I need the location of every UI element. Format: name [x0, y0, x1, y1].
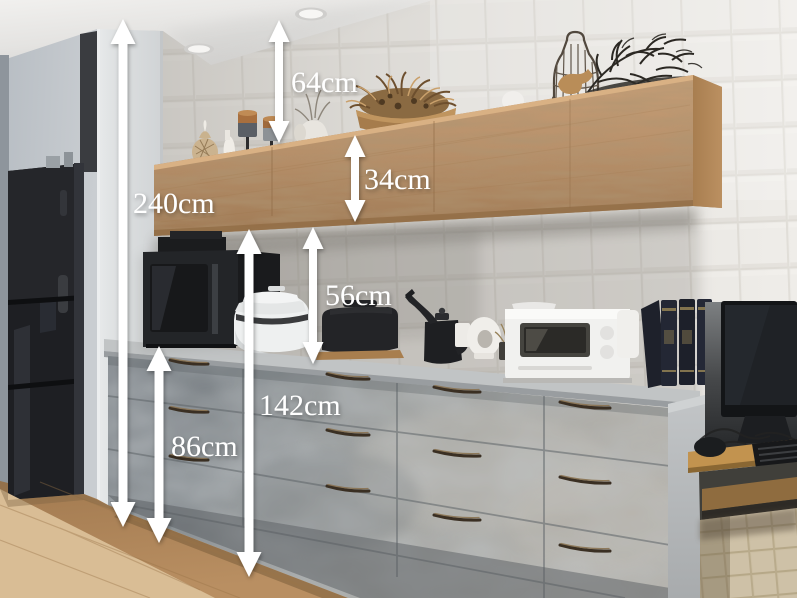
svg-text:240cm: 240cm	[133, 187, 215, 220]
svg-text:86cm: 86cm	[171, 430, 238, 463]
svg-text:34cm: 34cm	[364, 163, 431, 196]
svg-text:56cm: 56cm	[325, 279, 392, 312]
svg-text:142cm: 142cm	[259, 389, 341, 422]
svg-text:64cm: 64cm	[291, 66, 358, 99]
